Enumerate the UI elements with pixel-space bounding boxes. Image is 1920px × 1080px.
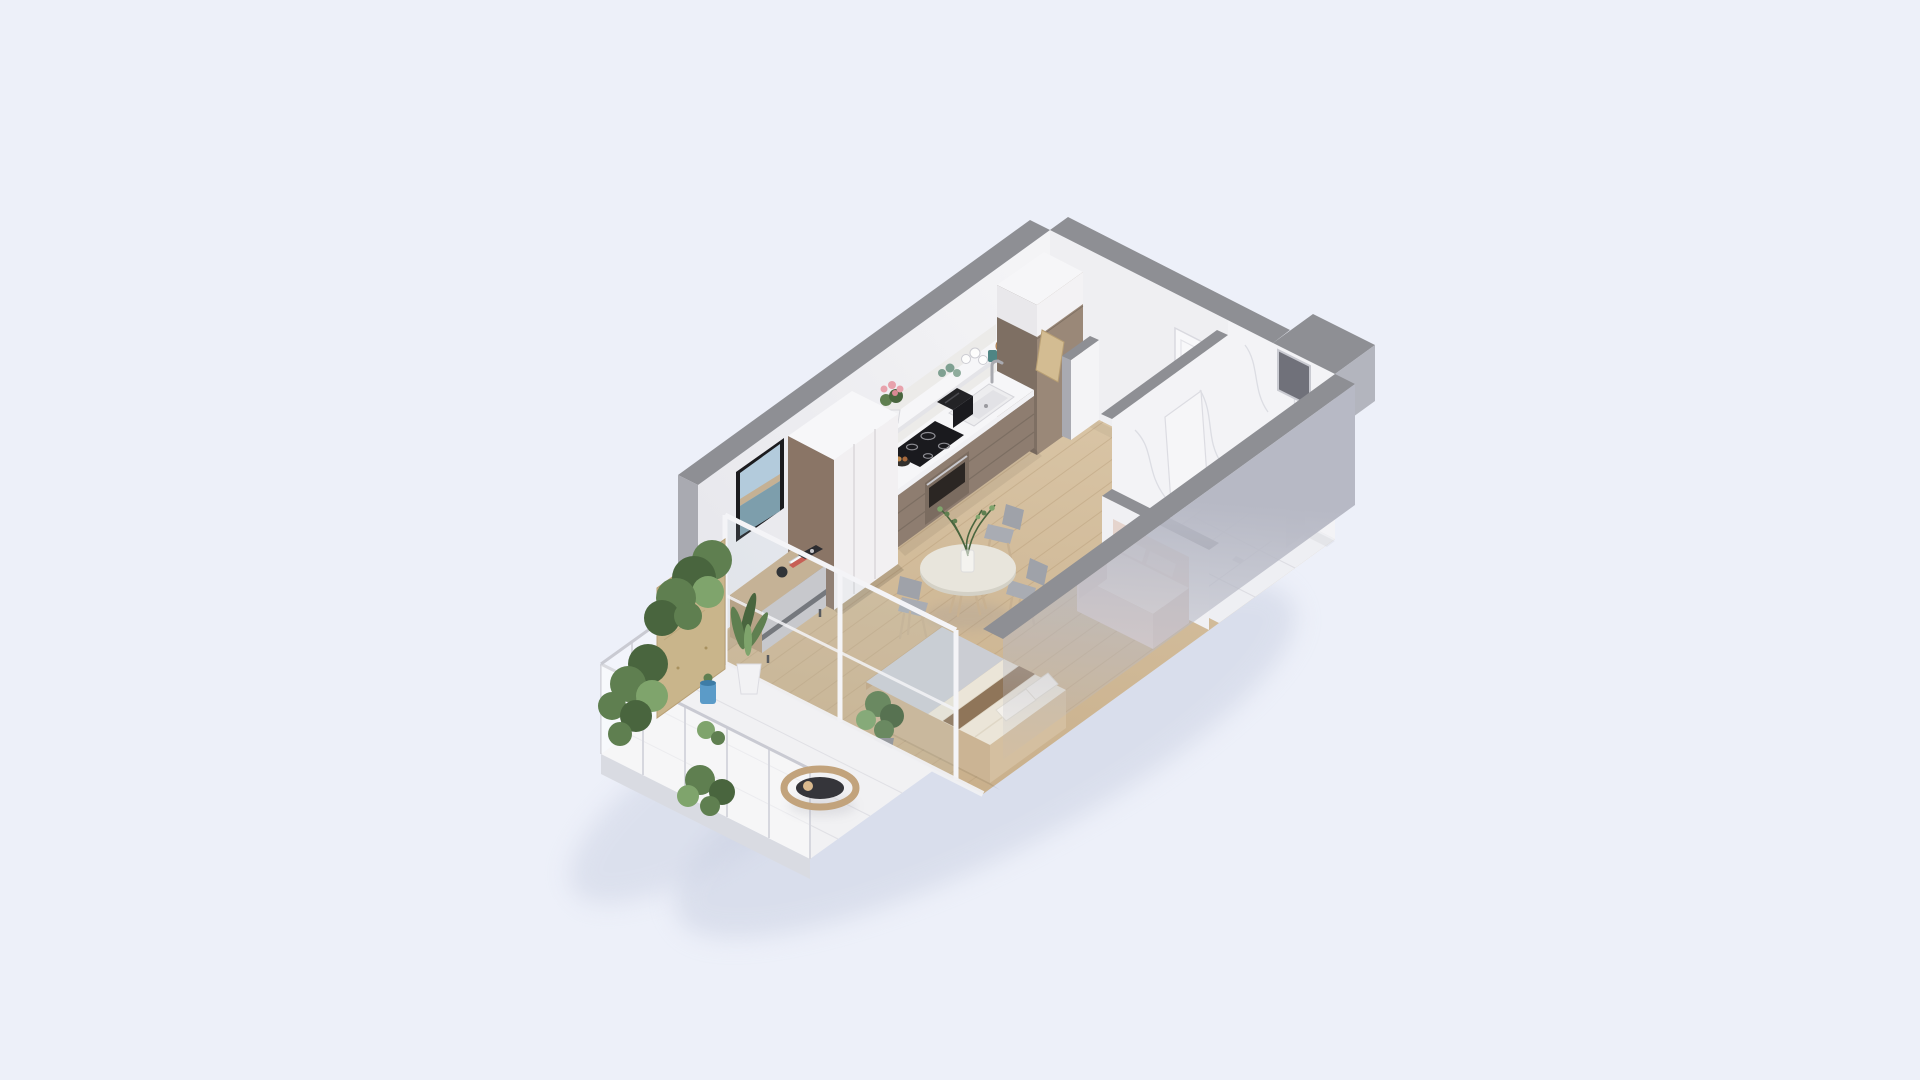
sprig (711, 731, 725, 745)
glass (962, 355, 971, 364)
plant-pot-white (737, 664, 761, 694)
record-dot (810, 549, 814, 553)
leaf (945, 512, 950, 517)
leaf (937, 506, 943, 512)
bush (674, 602, 702, 630)
drain (984, 404, 988, 408)
green-cup (953, 369, 961, 377)
stub-end (1062, 356, 1071, 440)
green-cup (938, 369, 946, 377)
glass (979, 356, 988, 365)
fruit (903, 457, 908, 462)
flower (892, 390, 898, 396)
leaf (982, 511, 987, 516)
glass (970, 348, 980, 358)
panel-dot (705, 647, 708, 650)
leaf (976, 515, 981, 520)
vase (961, 550, 974, 572)
leaf (953, 519, 958, 524)
apartment-render (0, 0, 1920, 1080)
leaf (989, 505, 995, 511)
bush (608, 722, 632, 746)
bush (677, 785, 699, 807)
panel-dot (677, 667, 680, 670)
bush (692, 576, 724, 608)
flower (888, 381, 896, 389)
flower (881, 386, 888, 393)
chair-seat-dark (796, 777, 844, 799)
bush (700, 796, 720, 816)
green-cup (946, 364, 955, 373)
leaf (744, 624, 752, 656)
pot-top (700, 680, 716, 686)
canvas (0, 0, 1920, 1080)
chair-cushion (803, 781, 813, 791)
